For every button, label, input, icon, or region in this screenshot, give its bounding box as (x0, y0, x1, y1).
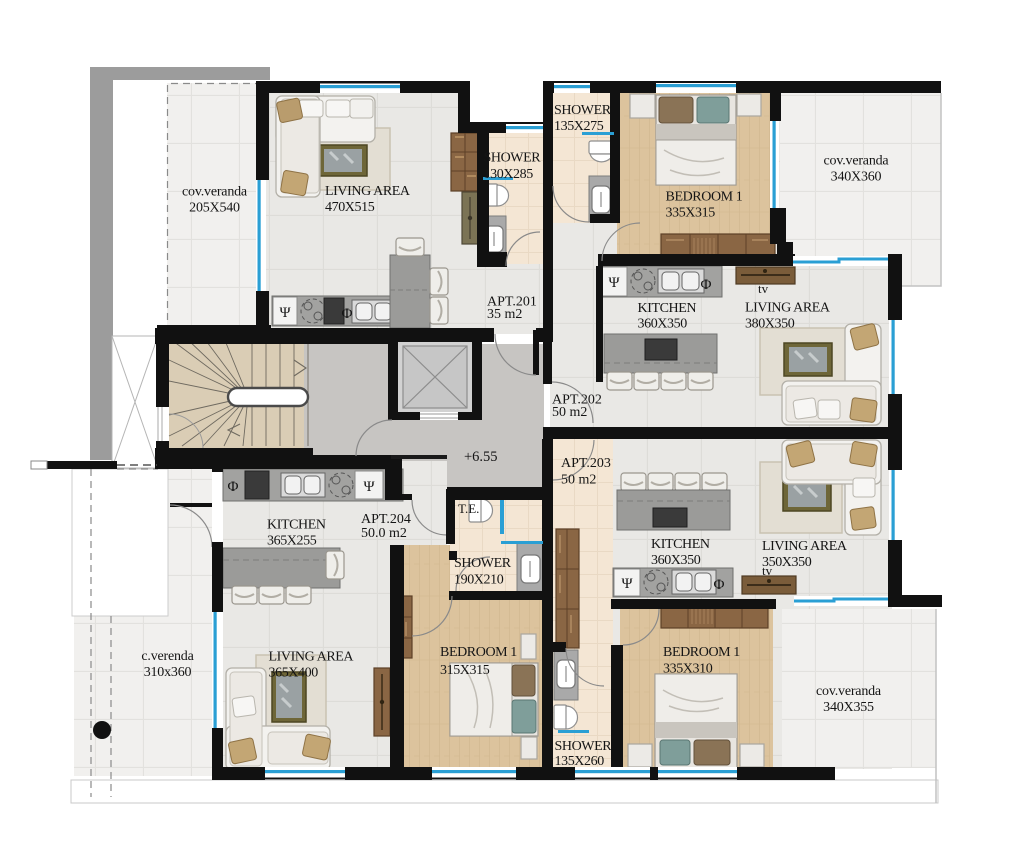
svg-text:Φ: Φ (342, 306, 353, 322)
svg-text:BEDROOM 1: BEDROOM 1 (440, 645, 517, 660)
svg-text:BEDROOM 1: BEDROOM 1 (666, 190, 743, 205)
svg-text:315X315: 315X315 (440, 663, 490, 678)
svg-text:KITCHEN: KITCHEN (638, 301, 697, 316)
svg-text:KITCHEN: KITCHEN (267, 518, 326, 533)
svg-text:335X310: 335X310 (663, 662, 713, 677)
svg-text:205X540: 205X540 (189, 201, 240, 216)
svg-text:tv: tv (762, 563, 773, 578)
svg-text:50 m2: 50 m2 (552, 405, 587, 420)
svg-text:SHOWER: SHOWER (555, 739, 613, 754)
svg-text:Φ: Φ (701, 277, 712, 293)
svg-text:LIVING AREA: LIVING AREA (762, 539, 848, 554)
svg-text:35 m2: 35 m2 (487, 307, 522, 322)
svg-text:Φ: Φ (228, 479, 239, 495)
svg-text:50.0 m2: 50.0 m2 (361, 526, 407, 541)
svg-text:135X260: 135X260 (555, 754, 605, 769)
svg-text:LIVING AREA: LIVING AREA (325, 184, 411, 199)
svg-text:c.verenda: c.verenda (141, 649, 194, 664)
svg-text:cov.veranda: cov.veranda (182, 185, 248, 200)
svg-text:380X350: 380X350 (745, 317, 795, 332)
svg-text:cov.veranda: cov.veranda (816, 684, 882, 699)
svg-text:tv: tv (758, 281, 769, 296)
svg-text:LIVING AREA: LIVING AREA (745, 301, 831, 316)
svg-text:365X400: 365X400 (269, 666, 319, 681)
svg-text:360X350: 360X350 (638, 317, 688, 332)
svg-text:130X285: 130X285 (484, 167, 534, 182)
svg-text:APT.204: APT.204 (361, 512, 411, 527)
svg-text:50 m2: 50 m2 (561, 473, 596, 488)
svg-text:190X210: 190X210 (454, 573, 504, 588)
svg-text:T.E.: T.E. (458, 501, 479, 516)
svg-text:Ψ: Ψ (621, 576, 633, 592)
svg-text:SHOWER: SHOWER (484, 151, 542, 166)
svg-text:cov.veranda: cov.veranda (824, 154, 890, 169)
svg-text:LIVING AREA: LIVING AREA (269, 650, 355, 665)
svg-text:340X360: 340X360 (831, 170, 882, 185)
svg-text:Ψ: Ψ (363, 479, 375, 495)
svg-text:310x360: 310x360 (144, 665, 192, 680)
svg-text:335X315: 335X315 (666, 206, 716, 221)
svg-text:360X350: 360X350 (651, 553, 701, 568)
svg-text:Ψ: Ψ (608, 275, 620, 291)
svg-text:340X355: 340X355 (823, 700, 874, 715)
svg-text:SHOWER: SHOWER (454, 556, 512, 571)
svg-text:Φ: Φ (714, 577, 725, 593)
svg-text:+6.55: +6.55 (464, 449, 498, 465)
svg-text:BEDROOM 1: BEDROOM 1 (663, 645, 740, 660)
svg-text:365X255: 365X255 (267, 534, 317, 549)
svg-text:APT.203: APT.203 (561, 456, 611, 471)
svg-text:135X275: 135X275 (554, 119, 604, 134)
svg-text:KITCHEN: KITCHEN (651, 537, 710, 552)
svg-text:Ψ: Ψ (279, 305, 291, 321)
svg-text:SHOWER: SHOWER (554, 103, 612, 118)
svg-text:470X515: 470X515 (325, 200, 375, 215)
